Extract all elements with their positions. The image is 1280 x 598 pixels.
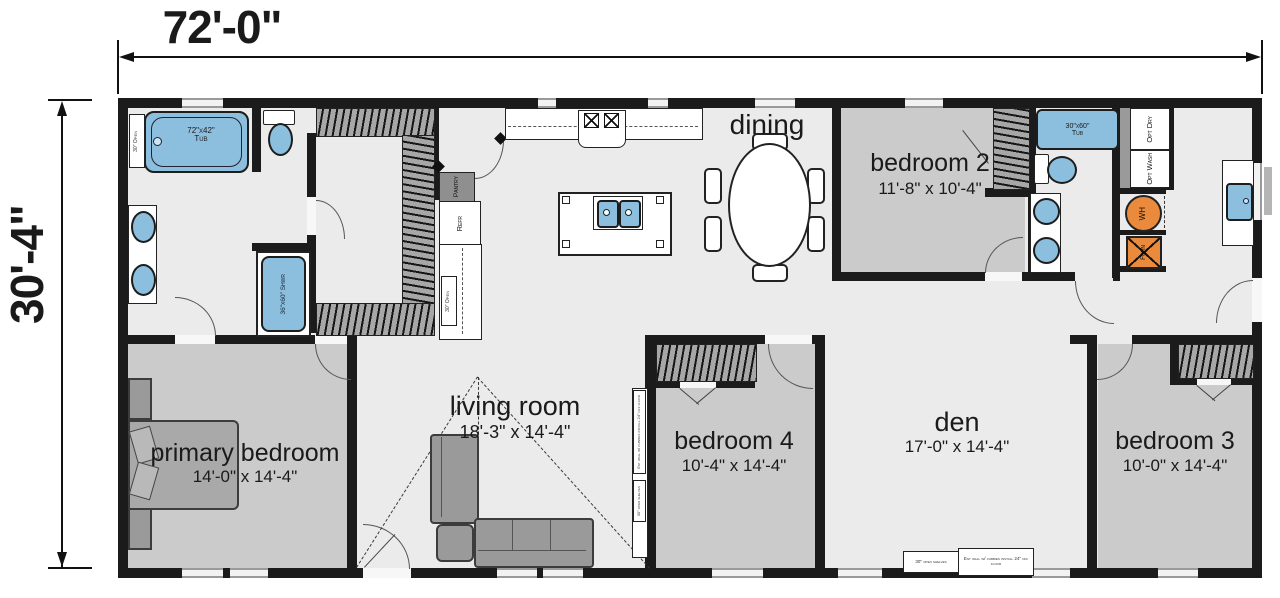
utility-sink [1226,183,1253,221]
nightstand [128,508,152,550]
bathtub: 72"x42" Tub [144,111,249,173]
dining-table [728,143,811,267]
ent-wall-note: Ent wall w/ cubbies install 24" off floo… [958,548,1034,576]
sofa-back-line [478,550,586,551]
sofa [474,518,594,568]
room-name: bedroom 2 [835,150,1025,176]
room-size: 17'-0" x 14'-4" [872,438,1042,456]
cabinet-dash-line [462,248,463,334]
shelves-note-label: 30" open shelves [637,486,641,516]
shower-pan: 36"x60" Shwr [261,256,306,332]
furnace-label: Furn [1140,245,1147,260]
bedroom3-closet-rod [1178,344,1254,379]
toilet-bowl [268,123,293,156]
room-size: 14'-0" x 14'-4" [125,468,365,486]
exterior-window-sill [1264,167,1272,215]
walkin-closet-rod [316,108,435,137]
optional-dryer: Opt Dry [1130,108,1170,150]
tub-label: Tub [1072,130,1083,137]
tub-size-label: 30"x60" [1066,123,1090,130]
bathtub-label: 72"x42" Tub [166,127,236,143]
window [755,98,795,108]
cubby-note-label: Ent wall w/ cubbies install 24" off floo… [637,395,641,469]
pantry: Pantry [439,172,475,202]
door-opening [985,272,1022,281]
window [1158,568,1198,578]
shelves-note-label: 30" open shelves [915,560,946,565]
sink-drain [625,209,632,216]
wall [815,335,825,568]
closet-dash-front [1164,196,1165,228]
height-dimension-label: 30'-4" [0,120,56,410]
room-label-bedroom4: bedroom 4 10'-4" x 14'-4" [655,428,813,475]
sink [1033,198,1060,225]
walkin-closet-rod [316,303,435,336]
sink-drain [603,209,610,216]
bathtub: 30"x60" Tub [1036,109,1119,150]
furnace: Furn [1126,236,1162,269]
door-opening [315,335,350,344]
room-size: 10'-4" x 14'-4" [655,457,813,475]
water-heater-label: WH [1139,207,1148,220]
walkin-closet-rod [402,135,435,305]
water-heater: WH [1125,195,1162,232]
window [543,568,583,578]
height-dim-arrow-up [57,101,67,116]
island-leg [656,240,664,248]
ottoman [436,524,474,562]
window [1032,568,1070,578]
sink [1033,237,1060,264]
bathtub-faucet [153,137,162,146]
door-opening [307,197,316,235]
window [712,568,763,578]
back-door-opening [1252,278,1262,322]
entry-door-opening [363,568,411,578]
nightstand [128,378,152,420]
toilet-bowl [1047,156,1077,184]
room-size: 18'-3" x 14'-4" [420,423,610,442]
width-dimension-line [122,56,1258,58]
room-name: primary bedroom [125,440,365,466]
loveseat [430,434,479,524]
room-name: bedroom 3 [1096,428,1254,454]
open-shelves-note: 30" open shelves [633,480,646,522]
window [182,98,223,108]
cubby-note-label: Ent wall w/ cubbies install 24" off floo… [960,557,1032,567]
room-label-den: den 17'-0" x 14'-4" [872,408,1042,456]
dining-chair [807,216,825,252]
wall [1028,272,1075,281]
room-label-dining: dining [692,110,842,139]
refrigerator-label: Refr [456,216,464,231]
room-name: living room [420,392,610,420]
room-name: den [872,408,1042,436]
door-opening [765,335,812,344]
dining-chair [704,216,722,252]
tub-open-note: 30" Open [129,114,145,168]
tub-label: Tub [166,135,236,143]
window [497,568,537,578]
dining-chair [704,168,722,204]
open-30-label: 30" Open [134,131,140,152]
window [648,98,668,108]
ent-wall-note: Ent wall w/ cubbies install 24" off floo… [633,390,646,474]
sink [131,211,156,243]
open-30-label: 30" Open [446,291,452,312]
room-name: bedroom 4 [655,428,813,454]
optional-washer: Opt Wash [1130,150,1170,188]
wall [1070,335,1097,344]
shower-label: 36"x60" Shwr [280,274,287,315]
floor-plan: 72'-0" 30'-4" [0,0,1280,598]
bedroom4-closet-rod [656,344,757,382]
sink-drain [1243,198,1249,204]
counter-open-note: 30" Open [441,276,457,326]
width-dim-tick-right [1261,40,1263,94]
wall [252,243,309,251]
open-shelves-note: 30" open shelves [903,551,959,573]
room-label-primary-bedroom: primary bedroom 14'-0" x 14'-4" [125,440,365,486]
height-dimension-line [61,104,63,568]
width-dimension-label: 72'-0" [132,0,312,54]
door-opening [175,335,215,344]
burner-icon [604,113,619,128]
loveseat-back-line [441,437,442,517]
wall [252,108,261,172]
island-leg [562,240,570,248]
opt-wash-label: Opt Wash [1146,153,1154,185]
width-dim-arrow-right [1246,52,1261,62]
window [538,98,556,108]
room-label-living-room: living room 18'-3" x 14'-4" [420,392,610,442]
room-size: 11'-8" x 10'-4" [835,180,1025,198]
window [905,98,943,108]
island-leg [562,196,570,204]
window [182,568,223,578]
sofa-cushion-line [550,520,551,550]
wall [1118,188,1166,194]
opt-dry-label: Opt Dry [1146,116,1154,143]
room-name: dining [692,110,842,139]
sink [131,264,156,296]
width-dim-tick-left [117,40,119,94]
refrigerator: Refr [439,201,481,246]
sofa-cushion-line [512,520,513,550]
width-dim-arrow-left [119,52,134,62]
window [230,568,268,578]
room-label-bedroom2: bedroom 2 11'-8" x 10'-4" [835,150,1025,198]
height-dim-tick-top [48,99,92,101]
island-leg [656,196,664,204]
height-dim-arrow-down [57,552,67,567]
height-dim-tick-bottom [48,567,92,569]
room-size: 10'-0" x 14'-4" [1096,457,1254,475]
room-label-bedroom3: bedroom 3 10'-0" x 14'-4" [1096,428,1254,475]
window [838,568,882,578]
burner-icon [584,113,599,128]
wall [1132,335,1252,344]
pantry-label: Pantry [453,176,460,197]
